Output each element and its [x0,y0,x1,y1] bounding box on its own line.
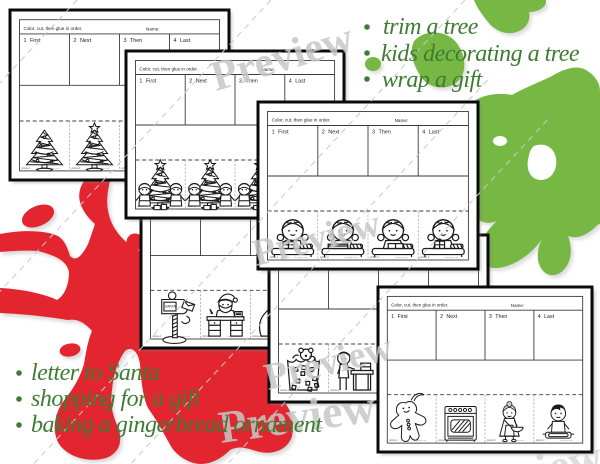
svg-text:Name:: Name: [511,303,524,308]
svg-text:shopping for a gift: shopping for a gift [31,386,201,412]
svg-text:3: 3 [372,130,375,136]
svg-text:2: 2 [189,79,192,85]
svg-text:First: First [146,79,157,85]
svg-text:1: 1 [272,130,275,136]
svg-text:Then: Then [379,130,391,136]
svg-text:Next: Next [196,79,208,85]
svg-text:Name:: Name: [146,26,160,31]
svg-text:Last: Last [295,79,306,85]
svg-text:Last: Last [544,314,554,320]
svg-text:kids decorating a tree: kids decorating a tree [381,41,580,67]
svg-text:wrap a gift: wrap a gift [382,67,484,93]
svg-text:4: 4 [422,130,425,136]
svg-text:©myclipart.com: ©myclipart.com [344,256,358,259]
svg-text:Name:: Name: [395,118,409,123]
svg-text:picture 4: picture 4 [536,439,545,442]
svg-text:baking a gingerbread ornament: baking a gingerbread ornament [31,412,323,438]
svg-text:Last: Last [429,130,440,136]
svg-text:Next: Next [328,130,340,136]
svg-text:4: 4 [538,314,541,320]
svg-text:4: 4 [174,38,177,44]
svg-text:First: First [278,130,289,136]
svg-text:Color, cut, then glue in order: Color, cut, then glue in order. [391,302,448,307]
svg-text:2: 2 [440,314,443,320]
svg-text:Color, cut, then glue in order: Color, cut, then glue in order. [272,118,331,123]
svg-text:picture 1: picture 1 [389,439,398,442]
svg-text:picture 1: picture 1 [22,167,32,170]
svg-text:Next: Next [446,314,457,320]
svg-text:Color, cut, then glue in order: Color, cut, then glue in order. [139,67,198,72]
svg-text:3: 3 [124,38,127,44]
svg-text:2: 2 [74,38,77,44]
svg-text:1: 1 [24,38,27,44]
svg-text:picture 2: picture 2 [72,167,82,170]
svg-text:letter to Santa: letter to Santa [31,360,160,386]
svg-text:SANTA: SANTA [165,305,177,309]
svg-text:1: 1 [139,79,142,85]
svg-text:©myclipart.com: ©myclipart.com [394,256,408,259]
svg-text:picture 3: picture 3 [487,439,496,442]
svg-text:Next: Next [80,38,92,44]
svg-text:Then: Then [130,38,142,44]
svg-text:trim a tree: trim a tree [383,14,479,40]
svg-text:2: 2 [322,130,325,136]
svg-text:1: 1 [391,314,394,320]
svg-text:Last: Last [180,38,191,44]
svg-text:Then: Then [495,314,507,320]
svg-text:©myclipart.com: ©myclipart.com [444,256,458,259]
svg-text:3: 3 [489,314,492,320]
svg-text:First: First [398,314,409,320]
svg-text:picture 1: picture 1 [153,335,163,338]
